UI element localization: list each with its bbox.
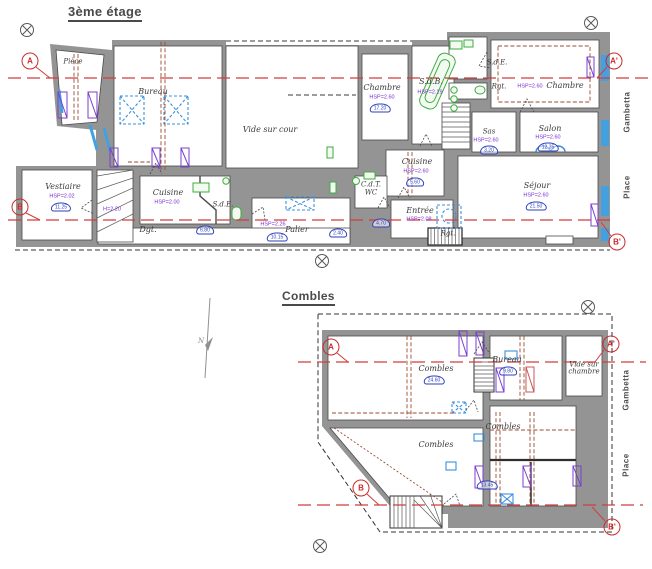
plan1-title: 3ème étage — [68, 4, 142, 22]
hsp-salon: HSP=2.60 — [535, 135, 560, 141]
room-label-chambre-left: Chambre — [363, 84, 400, 92]
hsp-cuisine-center: HSP=2.60 — [403, 169, 428, 175]
area-badge-sejour: 21.50 — [526, 202, 547, 211]
street-label-place-1: Place — [623, 175, 632, 198]
room-label-bureau: Bureau — [138, 88, 168, 96]
area-badge-cuisine-center: 5.60 — [406, 178, 424, 187]
room-label-combles-nw: Combles — [418, 365, 453, 373]
room-label-sejour: Séjour — [524, 182, 551, 190]
area-badge-bureau-combles: 9.80 — [499, 367, 517, 376]
section-marker-a-combles: A — [323, 339, 340, 356]
hsp-stairs: H=2.20 — [103, 207, 121, 213]
section-marker-b: B — [12, 199, 29, 216]
page: { "colors": { "wall": "#949494", "sectio… — [0, 0, 652, 569]
area-badge-palier: 10.15 — [267, 233, 288, 242]
room-label-cuisine-center: Cuisine — [402, 158, 432, 166]
section-marker-b-prime-combles: B' — [604, 519, 621, 536]
hsp-chambre-left: HSP=2.60 — [369, 95, 394, 101]
room-label-vide-sur-cour: Vide sur cour — [243, 126, 298, 134]
room-label-vestiaire: Vestiaire — [45, 183, 81, 191]
plan2-title: Combles — [282, 289, 335, 306]
room-label-dgt: Dgt. — [139, 226, 156, 234]
section-marker-a-prime: A' — [606, 53, 623, 70]
hsp-palier: HSP=2.26 — [260, 222, 285, 228]
north-arrow-icon — [205, 298, 213, 378]
area-badge-combles-nw: 24.60 — [424, 376, 445, 385]
room-label-bureau-combles: Bureau — [492, 356, 522, 364]
plan1-walls — [15, 32, 610, 250]
section-marker-a-prime-combles: A' — [603, 336, 620, 353]
room-label-chambre-right: Chambre — [546, 82, 583, 90]
hsp-sdb: HSP=2.19 — [417, 90, 442, 96]
hsp-cuisine-left: HSP=2.00 — [154, 200, 179, 206]
area-badge-dgt: 6.80 — [196, 226, 214, 235]
hsp-entree: HSP=2.08 — [406, 217, 431, 223]
north-arrow-label: N — [198, 337, 204, 345]
room-label-palier: Palier — [285, 226, 308, 234]
room-label-sas: Sas — [483, 128, 496, 135]
room-label-combles-mid: Combles — [485, 423, 520, 431]
room-label-sde-left: S.d.E. — [213, 201, 234, 208]
hsp-sas: HSP=2.60 — [473, 138, 498, 144]
street-label-place-2: Place — [622, 453, 631, 476]
room-label-cuisine-left: Cuisine — [153, 189, 183, 197]
area-badge-chambre-left: 17.20 — [370, 104, 391, 113]
room-label-piece: Pièce — [63, 58, 82, 65]
hsp-chambre-right: HSP=2.60 — [517, 84, 542, 90]
room-label-sde-top: S.d.E. — [487, 59, 508, 66]
plan2-walls — [318, 314, 612, 532]
room-label-rgt-bottom: Rgt. — [441, 230, 456, 237]
area-badge-sas: 3.20 — [480, 146, 498, 155]
room-label-entree: Entrée — [406, 207, 434, 215]
area-badge-palier2: 2.40 — [329, 229, 347, 238]
room-label-salon: Salon — [539, 125, 562, 133]
section-marker-b-combles: B — [353, 480, 370, 497]
room-label-wc: WC — [365, 189, 378, 196]
section-marker-a: A — [22, 53, 39, 70]
room-label-combles-sw: Combles — [418, 441, 453, 449]
area-badge-salon: 12.35 — [538, 143, 559, 152]
area-badge-combles-bottom: 13.45 — [477, 481, 498, 490]
street-label-gambetta-2: Gambetta — [622, 370, 631, 411]
area-badge-vestiaire: 11.25 — [51, 203, 71, 212]
section-marker-b-prime: B' — [609, 234, 626, 251]
area-badge-entree: 4.70 — [372, 219, 390, 228]
room-label-rgt-top: Rgt. — [492, 83, 507, 90]
room-label-vide-sur-chambre: Vide sur chambre — [561, 362, 607, 377]
hsp-vestiaire: HSP=2.02 — [49, 194, 74, 200]
floorplan-sheet: 3ème étage Combles Pièce Bureau Vide sur… — [0, 0, 652, 569]
hsp-sejour: HSP=2.60 — [523, 193, 548, 199]
street-label-gambetta-1: Gambetta — [623, 92, 632, 133]
room-label-sdb: S.d.B. — [419, 78, 443, 86]
